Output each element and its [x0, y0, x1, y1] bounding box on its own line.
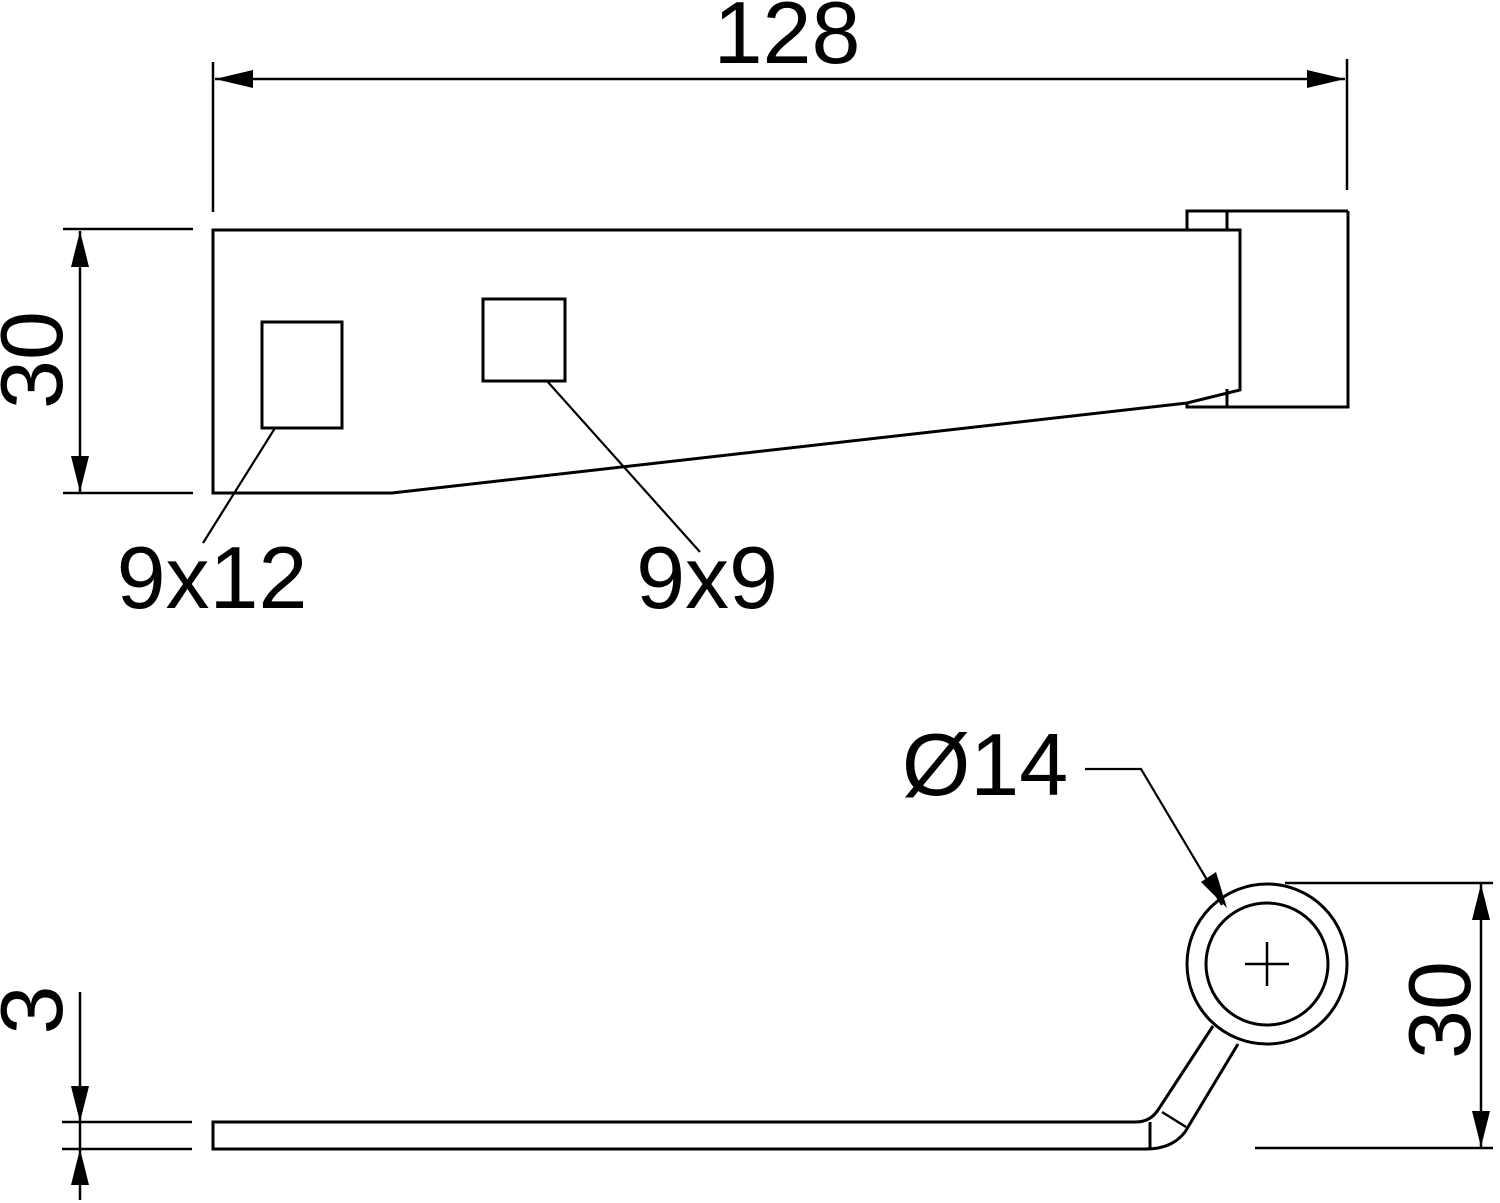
callout-diameter-14: Ø14	[902, 715, 1227, 908]
side-view: Ø14 30 3	[0, 715, 1493, 1200]
leader-line	[1085, 769, 1222, 905]
dim-label-30: 30	[1390, 961, 1489, 1059]
hole-label-9x12: 9x12	[117, 528, 308, 627]
dim-length-128: 128	[213, 0, 1347, 212]
arrowhead-down	[71, 1086, 89, 1122]
technical-drawing-canvas: 128 30 9x12 9x9	[0, 0, 1500, 1203]
arrowhead-right	[1307, 70, 1345, 88]
strap-profile	[213, 1026, 1238, 1149]
dim-label-30: 30	[0, 311, 81, 409]
arrowhead-down	[71, 456, 89, 492]
top-tab	[1187, 211, 1348, 230]
dim-height-30-top-view: 30	[0, 229, 193, 493]
dim-label-3: 3	[0, 986, 81, 1035]
arrowhead-up	[1472, 884, 1490, 920]
callout-hole-9x9: 9x9	[547, 381, 778, 627]
dim-height-30-side-view: 30	[1255, 883, 1493, 1148]
leader-line	[547, 381, 700, 552]
hole-9x9	[483, 299, 565, 381]
bend-tangent-tick	[1162, 1112, 1186, 1127]
center-cross	[1245, 942, 1289, 986]
hole-9x12	[262, 322, 342, 428]
bracket-arm-outline	[213, 230, 1240, 493]
arrowhead-up	[71, 1149, 89, 1185]
hole-label-9x9: 9x9	[636, 528, 778, 627]
dim-thickness-3: 3	[0, 986, 192, 1200]
wall-plate	[1187, 211, 1348, 407]
arrowhead-down	[1472, 1111, 1490, 1147]
diameter-label: Ø14	[902, 715, 1068, 814]
arrowhead-left	[215, 70, 253, 88]
technical-drawing-page: 128 30 9x12 9x9	[0, 0, 1500, 1203]
dim-label-128: 128	[714, 0, 861, 82]
arrowhead-up	[71, 231, 89, 267]
top-view: 128 30 9x12 9x9	[0, 0, 1348, 627]
